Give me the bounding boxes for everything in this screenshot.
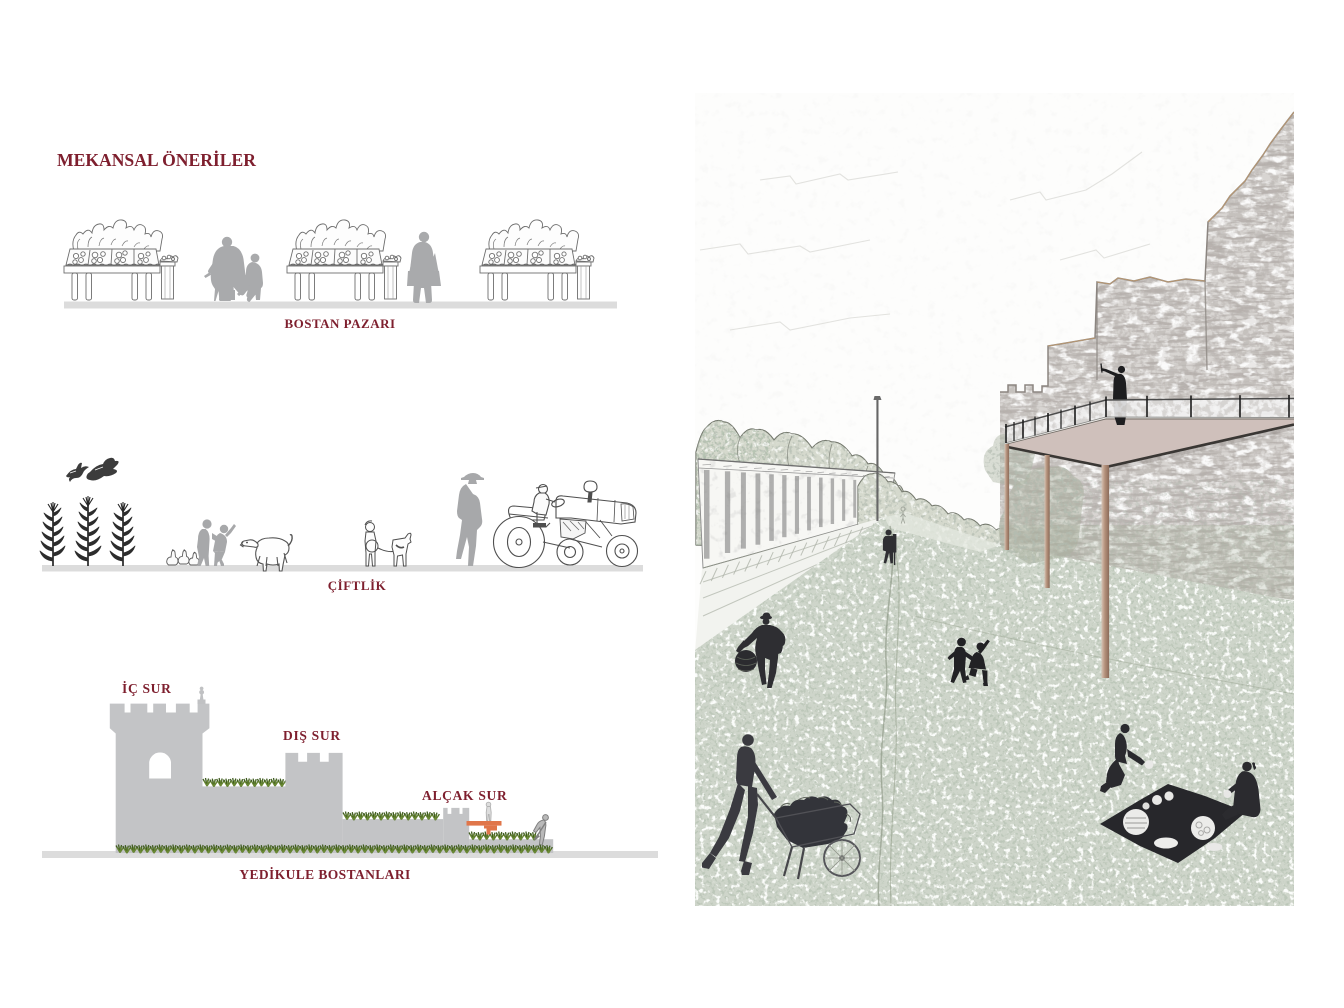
svg-text:DIŞ SUR: DIŞ SUR bbox=[283, 728, 341, 743]
svg-text:İÇ SUR: İÇ SUR bbox=[122, 681, 172, 696]
svg-text:YEDİKULE BOSTANLARI: YEDİKULE BOSTANLARI bbox=[239, 867, 410, 882]
svg-text:MEKANSAL ÖNERİLER: MEKANSAL ÖNERİLER bbox=[57, 150, 256, 170]
svg-text:ÇİFTLİK: ÇİFTLİK bbox=[328, 578, 387, 593]
svg-text:ALÇAK SUR: ALÇAK SUR bbox=[422, 788, 507, 803]
svg-text:BOSTAN PAZARI: BOSTAN PAZARI bbox=[284, 316, 395, 331]
